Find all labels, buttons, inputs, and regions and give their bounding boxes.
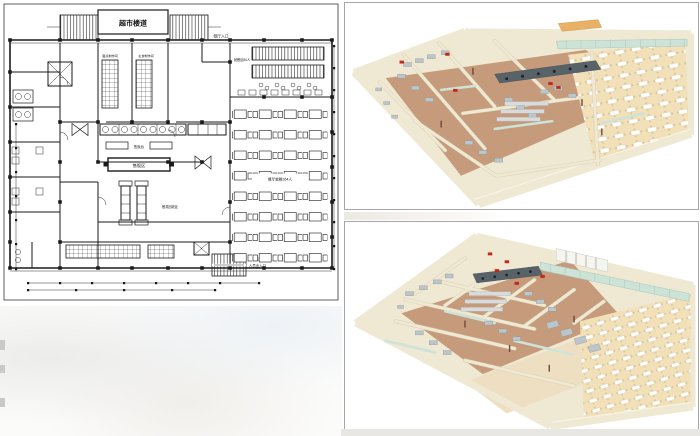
- plan-title: 超市楼道: [119, 19, 147, 28]
- stairs-top-left: [60, 15, 98, 40]
- edge-speck: [0, 398, 5, 407]
- prep-rooms: 面点制作间 主食制作间: [102, 53, 154, 108]
- main-dining-hall: 餐厅就餐264人: [232, 102, 328, 268]
- floor-plan-drawing: 超市楼道: [2, 2, 340, 302]
- serving-counter-label: 售饭台: [134, 144, 145, 149]
- small-dining-label: 就餐区84人: [234, 57, 251, 62]
- render-top-scene: [346, 4, 697, 208]
- edge-speck: [0, 365, 5, 373]
- serving-area-label: 售饭区: [133, 162, 146, 169]
- worktable-grid-left: [102, 60, 118, 108]
- return-counter-strip: [66, 245, 140, 258]
- prep-left-label: 面点制作间: [102, 53, 117, 58]
- bottom-strip: [341, 429, 700, 436]
- shelving-row: [505, 102, 549, 106]
- gap-smudge: [344, 212, 514, 220]
- floor-plan-panel: 超市楼道: [2, 2, 340, 302]
- prep-right-label: 主食制作间: [138, 53, 153, 58]
- shelving-row: [469, 292, 511, 296]
- return-counter-strip-2: [148, 245, 174, 258]
- presentation-board: 超市楼道: [0, 0, 700, 436]
- entrance-label: 餐厅入口: [213, 34, 228, 39]
- serving-counter: 售饭台 售饭区: [72, 124, 226, 172]
- window-counter-row: [238, 90, 322, 95]
- stairs-top-right: [170, 15, 208, 40]
- render-bottom-scene: [346, 223, 697, 432]
- edge-speck: [0, 340, 5, 350]
- background-wash: [0, 306, 342, 436]
- long-table-2: [252, 65, 324, 78]
- round-chairs: [259, 83, 317, 90]
- plan-title-block: 超市楼道: [47, 10, 221, 40]
- main-dining-label: 餐厅就餐264人: [268, 177, 292, 182]
- render-top-panel: [344, 2, 699, 210]
- long-table-1: [252, 47, 324, 60]
- render-bottom-panel: [344, 221, 699, 434]
- tray-return: 餐具回收区: [66, 181, 179, 258]
- left-fixtures: [12, 62, 72, 263]
- dish-return-label: 餐具回收区: [162, 204, 179, 209]
- dining-tables-grid: [232, 102, 328, 268]
- worktable-grid-right: [136, 60, 152, 108]
